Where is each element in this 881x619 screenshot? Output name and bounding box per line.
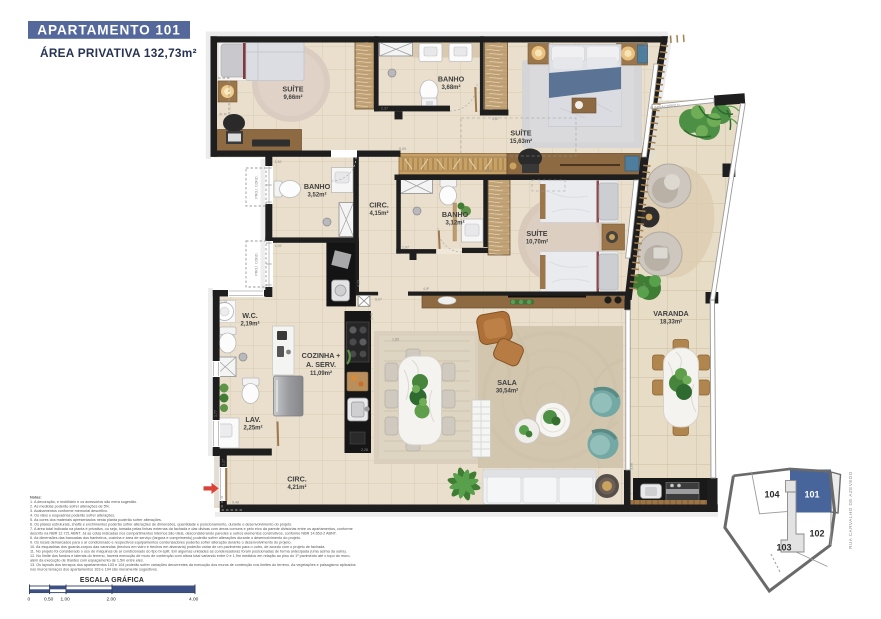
svg-text:1,22: 1,22 [220,300,227,304]
svg-text:2,37: 2,37 [381,106,388,110]
svg-text:CIRC.: CIRC. [287,475,307,484]
svg-text:3,68m²: 3,68m² [441,84,460,91]
svg-text:LAV.: LAV. [245,415,260,424]
svg-text:BANHO: BANHO [438,75,465,84]
svg-text:5,07: 5,07 [375,298,382,302]
svg-text:além da execução de tirantes c: além da execução de tirantes com espaçam… [30,559,144,563]
svg-text:3,06: 3,06 [630,463,634,470]
svg-text:descrito na NBR 12.721 ABNT. J: descrito na NBR 12.721 ABNT. Já as cotas… [30,532,337,536]
svg-text:PROJ. COND.: PROJ. COND. [255,252,259,275]
svg-text:Notas:: Notas: [30,496,42,500]
svg-text:2,19m²: 2,19m² [240,321,259,328]
svg-text:PROJ. COND.: PROJ. COND. [255,175,259,198]
svg-text:3,46: 3,46 [370,313,374,320]
svg-text:4,23: 4,23 [357,280,361,287]
svg-text:ESCALA GRÁFICA: ESCALA GRÁFICA [80,575,144,584]
svg-text:0,87: 0,87 [492,117,499,121]
svg-text:CIRC.: CIRC. [369,201,389,210]
svg-text:SALA: SALA [497,378,517,387]
svg-text:2,28: 2,28 [361,448,368,452]
svg-text:11,09m²: 11,09m² [310,370,332,377]
svg-text:1,77: 1,77 [214,410,218,417]
svg-text:1.00: 1.00 [61,597,71,603]
svg-text:3,52m²: 3,52m² [307,192,326,199]
svg-text:BANHO: BANHO [304,182,331,191]
svg-text:SUÍTE: SUÍTE [510,129,531,138]
svg-text:2,87: 2,87 [642,283,647,290]
svg-text:10,70m²: 10,70m² [526,239,548,246]
svg-text:4,9¹: 4,9¹ [423,287,430,291]
svg-text:2.00: 2.00 [107,597,117,603]
svg-text:101: 101 [804,490,819,500]
svg-text:9,48: 9,48 [232,500,239,504]
svg-text:104: 104 [764,490,779,500]
svg-text:4,15m²: 4,15m² [369,210,388,217]
svg-text:6. Os pilares estruturais, sha: 6. Os pilares estruturais, shafts e ench… [30,523,292,527]
svg-text:5. As cores dos materiais apre: 5. As cores dos materiais apresentados n… [30,518,162,522]
svg-text:2. As medidas poderão sofrer a: 2. As medidas poderão sofrer alterações … [30,505,110,509]
svg-text:103: 103 [776,543,791,553]
svg-text:9. Os locais demarcados para o: 9. Os locais demarcados para o ar condic… [30,541,292,545]
svg-text:3,12m²: 3,12m² [445,220,464,227]
svg-text:APARTAMENTO 101: APARTAMENTO 101 [37,22,180,37]
svg-text:30,54m²: 30,54m² [496,388,518,395]
svg-text:13. Os layouts dos terraços do: 13. Os layouts dos terraços dos apartame… [30,563,356,567]
svg-text:VARANDA: VARANDA [653,309,688,318]
svg-text:BANHO: BANHO [442,210,469,219]
svg-text:2,25m²: 2,25m² [243,425,262,432]
svg-text:0: 0 [28,597,31,603]
svg-text:6. As dimensões das bancadas d: 6. As dimensões das bancadas dos banheir… [30,536,301,540]
svg-text:9,66m²: 9,66m² [283,94,302,101]
svg-text:4,21m²: 4,21m² [287,484,306,491]
svg-text:10. As esquadrias dos guarda-c: 10. As esquadrias dos guarda-corpos das … [30,545,325,549]
svg-text:W.C.: W.C. [242,311,258,320]
svg-text:nos muros terraços dos apartam: nos muros terraços dos apartamentos 103 … [30,568,158,572]
svg-text:1,97: 1,97 [402,245,409,249]
svg-text:11. No projeto foi considerado: 11. No projeto foi considerado o uso de … [30,550,347,554]
svg-text:COZINHA +: COZINHA + [302,351,341,360]
svg-text:18,33m²: 18,33m² [660,319,682,326]
svg-text:2,08: 2,08 [485,169,492,173]
svg-text:1. A decoração, e mobiliário e: 1. A decoração, e mobiliário e os acessó… [30,500,137,504]
svg-text:A. SERV.: A. SERV. [306,360,336,369]
svg-text:1,85: 1,85 [392,338,399,342]
svg-text:7. A área total indicada na pl: 7. A área total indicada na planta é pri… [30,527,353,531]
svg-text:1,92: 1,92 [275,244,282,248]
svg-text:SUÍTE: SUÍTE [526,229,547,238]
svg-text:12. No limite dos fundos e lat: 12. No limite dos fundos e laterais do t… [30,554,351,558]
svg-text:RUA CARVALHO DE AZEVEDO: RUA CARVALHO DE AZEVEDO [848,471,853,549]
svg-text:102: 102 [809,529,824,539]
svg-text:SUÍTE: SUÍTE [282,85,303,94]
svg-text:5,09: 5,09 [399,147,406,151]
svg-text:1,17: 1,17 [222,459,226,466]
svg-text:0.50: 0.50 [44,597,54,603]
svg-text:ÁREA PRIVATIVA 132,73m²: ÁREA PRIVATIVA 132,73m² [40,46,197,60]
svg-text:4. Os vãos e esquadrias poderã: 4. Os vãos e esquadrias poderão sofrer a… [30,514,115,518]
svg-text:4.00: 4.00 [189,597,199,603]
svg-text:3. Acabamentos conforme memori: 3. Acabamentos conforme memorial descrit… [30,509,108,513]
svg-text:1,92: 1,92 [275,160,282,164]
svg-text:15,63m²: 15,63m² [510,138,532,145]
